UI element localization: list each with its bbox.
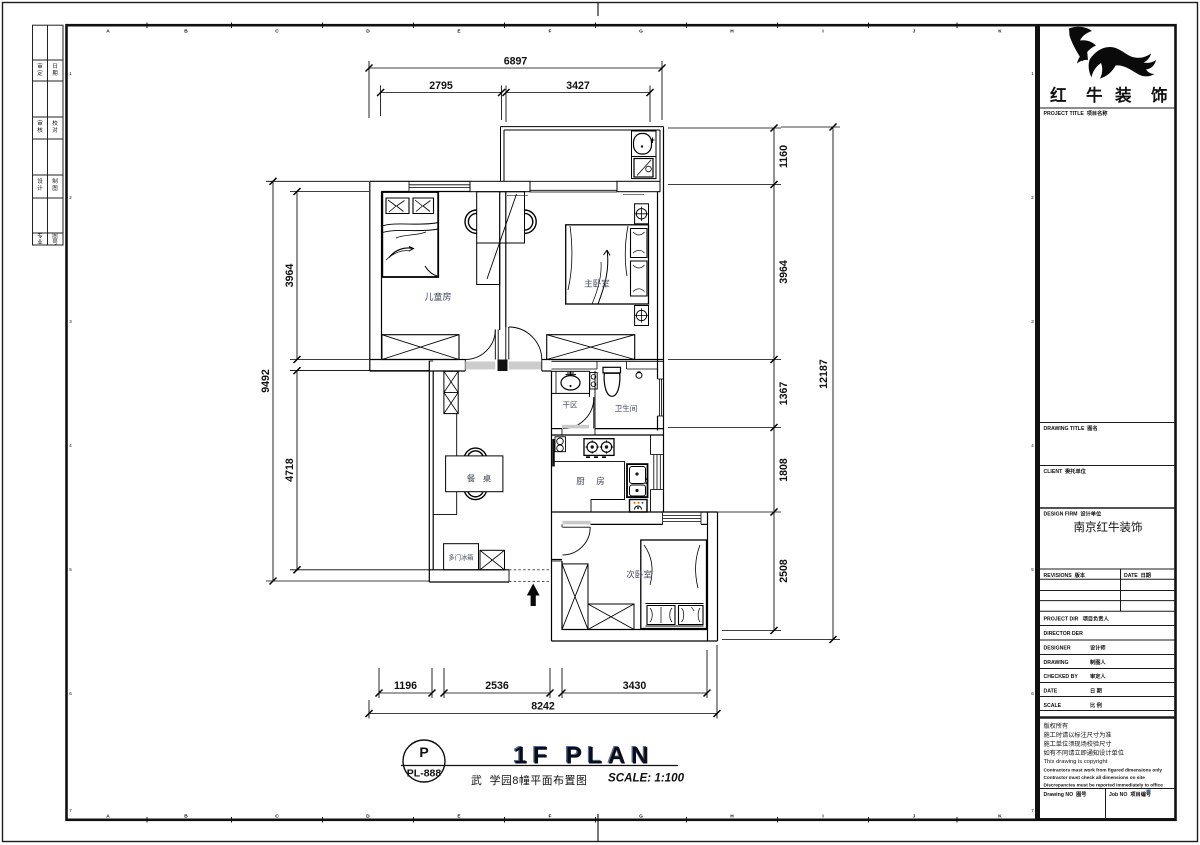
svg-text:红: 红: [1050, 85, 1067, 105]
svg-text:J: J: [913, 29, 916, 35]
svg-text:4718: 4718: [284, 458, 296, 482]
svg-text:F: F: [549, 29, 552, 35]
svg-text:1196: 1196: [394, 680, 417, 692]
svg-text:儿童房: 儿童房: [424, 291, 451, 302]
svg-text:9492: 9492: [260, 369, 272, 393]
svg-text:次卧室: 次卧室: [626, 570, 652, 580]
svg-text:2536: 2536: [485, 680, 509, 692]
svg-text:DRAWING TITLE 图名: DRAWING TITLE 图名: [1044, 424, 1098, 432]
svg-text:2795: 2795: [429, 80, 453, 92]
svg-text:DESIGNER: DESIGNER: [1044, 646, 1071, 652]
svg-text:卫生间: 卫生间: [615, 403, 638, 413]
svg-text:设: 设: [37, 177, 43, 185]
svg-text:CLIENT 委托单位: CLIENT 委托单位: [1044, 467, 1087, 475]
svg-text:南京红牛装饰: 南京红牛装饰: [1074, 520, 1143, 534]
svg-text:This drawing is copyright: This drawing is copyright: [1044, 759, 1108, 765]
svg-text:计: 计: [37, 184, 43, 192]
svg-text:2508: 2508: [778, 559, 790, 583]
svg-text:审: 审: [37, 62, 43, 70]
svg-text:B: B: [184, 814, 188, 820]
svg-text:Contractors must work from fig: Contractors must work from figured dimen…: [1044, 768, 1163, 773]
svg-text:PROJECT TITLE 项目名称: PROJECT TITLE 项目名称: [1044, 109, 1109, 117]
svg-text:P: P: [419, 744, 428, 760]
svg-text:Contractor must check all dime: Contractor must check all dimensions on …: [1044, 775, 1146, 780]
svg-text:C: C: [275, 29, 279, 35]
svg-text:8242: 8242: [531, 701, 555, 713]
svg-text:SCALE: 1:100: SCALE: 1:100: [608, 772, 685, 785]
svg-text:G: G: [639, 814, 643, 820]
svg-text:业: 业: [37, 238, 43, 246]
svg-text:对: 对: [52, 126, 58, 134]
svg-text:REVISIONS 版本: REVISIONS 版本: [1044, 571, 1086, 579]
svg-text:3964: 3964: [778, 260, 790, 284]
svg-text:号: 号: [52, 239, 58, 246]
svg-text:Job NO 项目编号: Job NO 项目编号: [1109, 790, 1151, 798]
svg-text:日: 日: [52, 63, 58, 70]
svg-text:Drawing NO 图号: Drawing NO 图号: [1044, 790, 1087, 798]
svg-text:K: K: [998, 29, 1002, 35]
svg-text:审: 审: [37, 119, 43, 127]
svg-text:H: H: [730, 814, 734, 820]
svg-text:H: H: [730, 29, 734, 35]
svg-text:图: 图: [52, 184, 58, 192]
svg-text:C: C: [275, 814, 279, 820]
svg-text:B: B: [184, 29, 188, 35]
svg-text:K: K: [998, 814, 1002, 820]
svg-text:PL-888: PL-888: [407, 768, 442, 780]
svg-text:设计师: 设计师: [1090, 644, 1106, 652]
svg-text:制: 制: [52, 177, 58, 185]
svg-text:施工时请以标注尺寸为准: 施工时请以标注尺寸为准: [1044, 731, 1112, 739]
svg-text:审定人: 审定人: [1090, 672, 1106, 680]
svg-text:施工单位须现场校验尺寸: 施工单位须现场校验尺寸: [1044, 740, 1112, 748]
svg-text:校: 校: [52, 119, 58, 127]
svg-text:3427: 3427: [566, 80, 590, 92]
svg-text:主卧室: 主卧室: [584, 279, 610, 289]
svg-text:饰: 饰: [1151, 85, 1168, 105]
svg-text:CHECKED BY: CHECKED BY: [1044, 674, 1079, 680]
svg-text:期: 期: [52, 70, 58, 77]
svg-text:日 期: 日 期: [1090, 686, 1102, 694]
svg-text:1367: 1367: [778, 382, 790, 406]
svg-text:6897: 6897: [504, 56, 528, 68]
svg-text:干区: 干区: [563, 401, 578, 410]
svg-text:D: D: [366, 814, 370, 820]
svg-text:制图人: 制图人: [1090, 658, 1106, 666]
svg-text:3964: 3964: [284, 264, 296, 288]
svg-text:A: A: [106, 814, 110, 820]
svg-text:1160: 1160: [778, 145, 790, 168]
svg-text:PROJECT DIR 项目负责人: PROJECT DIR 项目负责人: [1044, 615, 1110, 623]
svg-text:武 学园8幢平面布置图: 武 学园8幢平面布置图: [471, 773, 587, 787]
svg-text:比 例: 比 例: [1090, 701, 1102, 709]
svg-text:DIRECTOR DER: DIRECTOR DER: [1044, 631, 1084, 637]
svg-text:多门冰箱: 多门冰箱: [448, 553, 473, 562]
svg-text:餐: 餐: [467, 474, 476, 484]
svg-text:版权所有: 版权所有: [1044, 722, 1069, 730]
svg-text:Discrepancies must be reported: Discrepancies must be reported immediate…: [1044, 783, 1164, 788]
svg-text:房: 房: [596, 476, 605, 486]
svg-text:A: A: [106, 29, 110, 35]
svg-text:DRAWING: DRAWING: [1044, 660, 1069, 666]
svg-text:G: G: [639, 29, 643, 35]
svg-text:1808: 1808: [778, 458, 790, 482]
svg-text:厨: 厨: [576, 476, 585, 486]
svg-text:专: 专: [37, 232, 43, 240]
svg-text:SCALE: SCALE: [1044, 703, 1062, 709]
svg-text:DATE: DATE: [1044, 688, 1058, 694]
svg-text:1F PLAN: 1F PLAN: [514, 743, 655, 770]
svg-text:桌: 桌: [483, 474, 492, 484]
svg-text:DESIGN FIRM 设计单位: DESIGN FIRM 设计单位: [1044, 510, 1102, 518]
svg-text:12187: 12187: [818, 359, 830, 389]
svg-text:核: 核: [37, 126, 43, 134]
svg-text:牛: 牛: [1086, 85, 1103, 105]
svg-text:如有不同请立即通知设计单位: 如有不同请立即通知设计单位: [1044, 749, 1124, 757]
svg-text:J: J: [913, 814, 916, 820]
svg-text:装: 装: [1115, 85, 1132, 105]
svg-text:定: 定: [37, 69, 43, 77]
svg-text:F: F: [549, 814, 552, 820]
svg-text:3430: 3430: [623, 680, 647, 692]
svg-text:DATE 日期: DATE 日期: [1124, 571, 1151, 579]
svg-text:D: D: [366, 29, 370, 35]
svg-text:图: 图: [52, 232, 58, 240]
